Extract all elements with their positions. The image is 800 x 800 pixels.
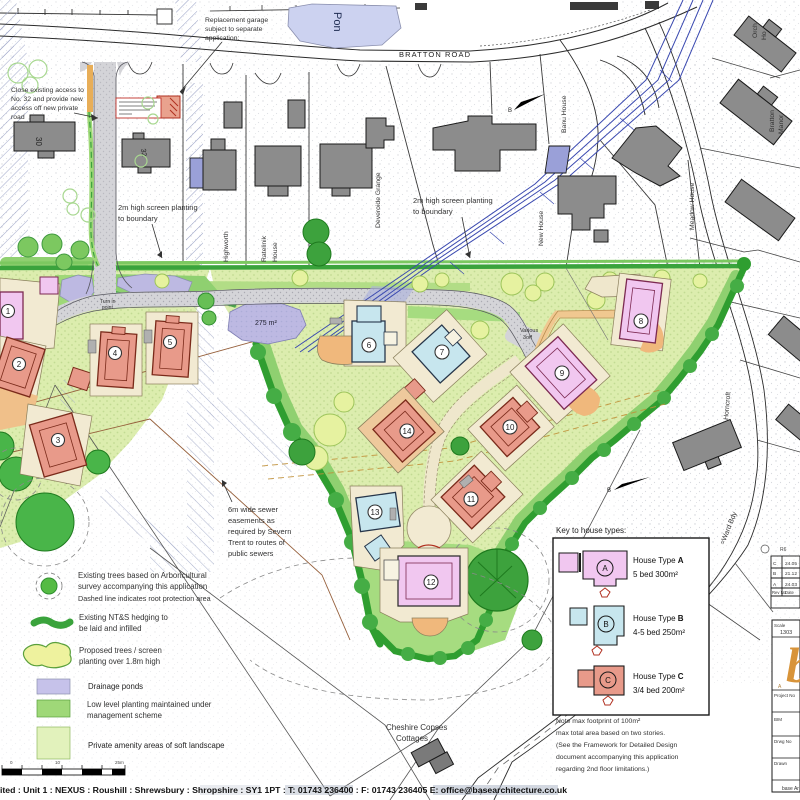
svg-text:5 bed 300m²: 5 bed 300m² (633, 570, 678, 579)
svg-text:24.03: 24.03 (785, 582, 797, 588)
svg-text:6m wide sewer: 6m wide sewer (228, 505, 279, 514)
svg-text:B: B (773, 571, 776, 577)
svg-text:max total area based on two st: max total area based on two stories. (556, 730, 665, 737)
svg-text:4: 4 (113, 349, 118, 358)
svg-text:easements as: easements as (228, 516, 275, 525)
svg-text:management scheme: management scheme (87, 711, 162, 720)
svg-text:13: 13 (371, 508, 380, 517)
svg-text:No. 32 and provide new: No. 32 and provide new (11, 96, 83, 103)
svg-text:3/4 bed 200m²: 3/4 bed 200m² (633, 686, 685, 695)
svg-text:BIM: BIM (774, 717, 782, 722)
svg-text:Drainage ponds: Drainage ponds (88, 682, 143, 691)
svg-text:Note max footprint of 100m²: Note max footprint of 100m² (556, 718, 641, 725)
svg-text:subject to separate: subject to separate (205, 26, 263, 33)
svg-text:25m: 25m (115, 760, 124, 765)
svg-text:10: 10 (55, 760, 61, 765)
svg-text:Pon: Pon (331, 12, 343, 32)
svg-text:Close existing access to: Close existing access to (11, 87, 84, 94)
svg-text:B: B (607, 488, 611, 494)
svg-text:6: 6 (367, 341, 372, 350)
svg-text:14: 14 (403, 427, 412, 436)
svg-text:Cottages: Cottages (396, 734, 428, 743)
svg-text:Low level planting maintained: Low level planting maintained under (87, 700, 212, 709)
svg-text:Key to house types:: Key to house types: (556, 526, 626, 535)
svg-text:New House: New House (538, 211, 545, 246)
svg-text:Private amenity areas of soft: Private amenity areas of soft landscape (88, 741, 225, 750)
svg-text:Orch: Orch (752, 23, 759, 38)
svg-text:5: 5 (168, 338, 173, 347)
svg-text:be laid and infilled: be laid and infilled (79, 624, 141, 633)
svg-text:3off: 3off (523, 335, 533, 341)
svg-text:Bratton: Bratton (769, 110, 776, 132)
svg-text:2: 2 (17, 360, 22, 369)
svg-text:12: 12 (427, 578, 436, 587)
svg-text:public sewers: public sewers (228, 549, 274, 558)
svg-text:House Type B: House Type B (633, 614, 684, 623)
svg-text:21.12: 21.12 (785, 571, 797, 577)
svg-text:2m high screen planting: 2m high screen planting (118, 203, 198, 212)
svg-text:b: b (786, 637, 800, 693)
svg-text:Various: Various (520, 328, 538, 334)
svg-text:1303: 1303 (780, 630, 792, 636)
svg-text:C: C (605, 676, 611, 685)
svg-text:required by Severn: required by Severn (228, 527, 291, 536)
svg-text:survey accompanying this appli: survey accompanying this application (78, 582, 207, 591)
svg-text:House: House (272, 242, 279, 262)
svg-text:275 m²: 275 m² (255, 320, 277, 327)
svg-text:regarding 2nd floor limitation: regarding 2nd floor limitations.) (556, 766, 649, 773)
svg-text:30: 30 (34, 137, 43, 146)
svg-text:Drawn: Drawn (774, 761, 788, 766)
svg-text:House Type A: House Type A (633, 556, 684, 565)
svg-text:application:: application: (205, 35, 239, 42)
svg-text:Cheshire Copses: Cheshire Copses (386, 723, 447, 732)
svg-text:B: B (603, 620, 608, 629)
svg-text:point: point (102, 305, 113, 311)
svg-text:House Type C: House Type C (633, 672, 684, 681)
svg-text:(See the Framework for Detaile: (See the Framework for Detailed Design (556, 742, 677, 749)
svg-text:planting over 1.8m high: planting over 1.8m high (79, 657, 160, 666)
svg-text:Existing NT&S hedging to: Existing NT&S hedging to (79, 613, 169, 622)
svg-text:3: 3 (56, 436, 61, 445)
svg-text:Dashed line indicates root pro: Dashed line indicates root protection ar… (78, 594, 211, 603)
svg-text:BRATTON ROAD: BRATTON ROAD (399, 50, 471, 59)
svg-text:Replacement garage: Replacement garage (205, 17, 268, 24)
svg-text:11: 11 (467, 495, 476, 504)
svg-text:Date: Date (785, 590, 795, 595)
svg-text:Drwg No: Drwg No (774, 739, 792, 744)
svg-text:9: 9 (560, 369, 565, 378)
svg-text:Trent to routes of: Trent to routes of (228, 538, 286, 547)
svg-text:Ratelinik: Ratelinik (261, 235, 268, 262)
svg-text:Ho: Ho (761, 31, 768, 40)
svg-text:Existing trees based on Arbori: Existing trees based on Arboricultural (78, 571, 207, 580)
svg-text:2m high screen planting: 2m high screen planting (413, 196, 493, 205)
svg-text:Banu House: Banu House (561, 95, 568, 133)
svg-text:ited : Unit 1 : NEXUS : Roushi: ited : Unit 1 : NEXUS : Roushill : Shrew… (0, 785, 567, 795)
svg-text:Project No: Project No (774, 693, 796, 698)
svg-text:A: A (602, 564, 608, 573)
svg-text:4-5 bed 250m²: 4-5 bed 250m² (633, 628, 685, 637)
svg-text:B: B (508, 108, 512, 114)
svg-text:1: 1 (6, 307, 11, 316)
svg-text:Proposed trees / screen: Proposed trees / screen (79, 646, 162, 655)
svg-text:to boundary: to boundary (118, 214, 158, 223)
svg-text:to boundary: to boundary (413, 207, 453, 216)
svg-text:Manor: Manor (778, 114, 785, 134)
svg-text:road: road (11, 114, 25, 121)
svg-text:base Ar: base Ar (782, 786, 799, 792)
svg-text:8: 8 (639, 317, 644, 326)
svg-text:C: C (773, 561, 777, 567)
svg-text:Scale: Scale (774, 623, 786, 628)
svg-text:Meadow House: Meadow House (689, 183, 696, 230)
svg-text:R6: R6 (780, 547, 787, 553)
svg-text:10: 10 (506, 423, 515, 432)
svg-text:Deveroide Grange: Deveroide Grange (375, 172, 382, 228)
svg-text:24.05: 24.05 (785, 561, 797, 567)
svg-text:access off new private: access off new private (11, 105, 78, 112)
svg-text:Highworth: Highworth (223, 231, 230, 262)
svg-text:7: 7 (440, 348, 445, 357)
svg-text:document accompanying this app: document accompanying this application (556, 754, 679, 761)
